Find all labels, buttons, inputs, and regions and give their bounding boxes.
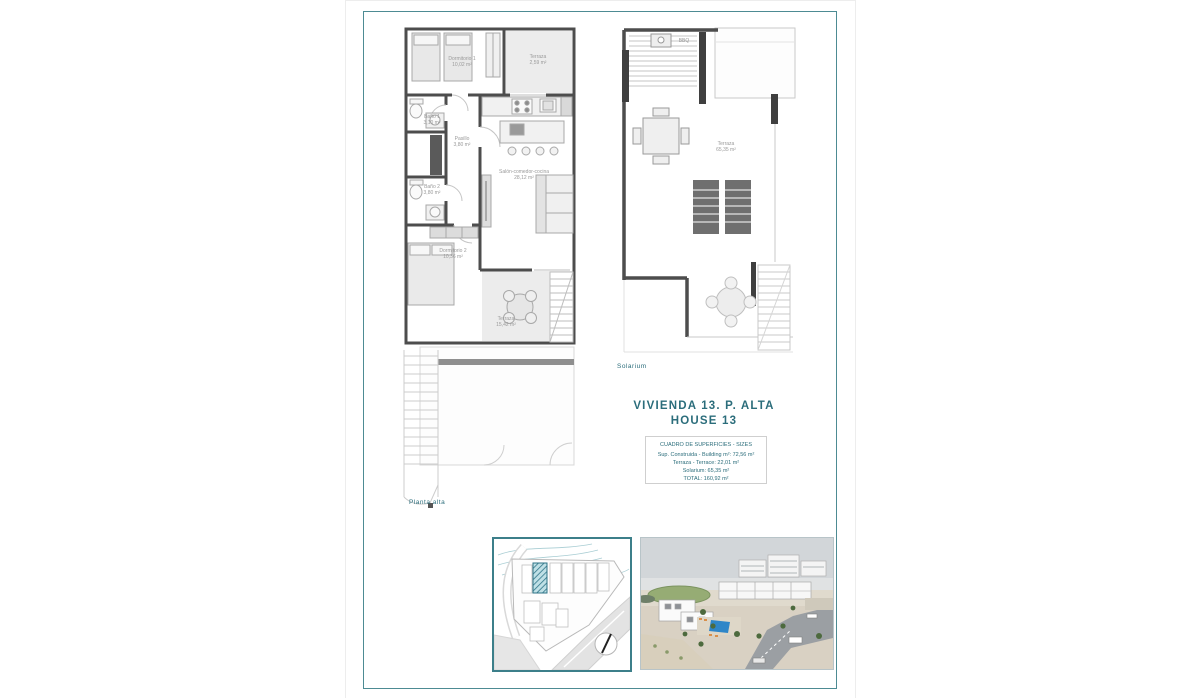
solarium-plan-drawing [615,22,805,377]
room-label-dormitorio2: Dormitorio 2 10,36 m² [439,249,466,260]
title-line2: HOUSE 13 [628,414,780,429]
outdoor-sink-icon [651,34,671,47]
north-marker [595,633,617,655]
aerial-render-drawing [641,538,833,669]
sofa-icon [536,175,573,233]
site-plan-image [492,537,632,672]
surface-row-solarium: Solarium: 65,35 m² [646,467,766,475]
caption-solarium: Solarium [617,363,647,370]
terraced-houses [719,582,811,599]
lower-patio-outline [420,347,574,465]
bbq-label: BBQ [679,39,690,45]
double-bed-icon [408,227,478,305]
room-label-bano2: Baño 2 3,80 m² [424,185,441,196]
tv-unit-icon [482,175,491,227]
kitchen-island [500,121,564,155]
room-label-salon: Salón-comedor-cocina 28,12 m² [499,170,549,181]
utility-shaft [430,135,442,175]
room-label-bano1: Baño 1 3,10 m² [424,115,441,126]
room-label-terraza-bottom: Terraza 15,42 m² [496,317,516,328]
title-block: VIVIENDA 13. P. ALTA HOUSE 13 [628,399,780,429]
roof-overhang [715,28,795,98]
room-label-pasillo: Pasillo 3,80 m² [454,137,471,148]
outdoor-table-icon [633,108,689,164]
caption-planta-alta: Planta alta [409,499,445,506]
upper-floor-plan-drawing [400,25,580,510]
room-label-terraza-top: Terraza 2,59 m² [530,55,547,66]
highlighted-plot-house13 [533,563,547,593]
surface-table-header: CUADRO DE SUPERFICIES - SIZES [646,441,766,449]
title-line1: VIVIENDA 13. P. ALTA [628,399,780,414]
kitchen-counter [482,97,572,116]
room-label-solarium-terraza: Terraza 65,35 m² [716,142,736,153]
interior-stair [550,272,573,342]
wardrobe-icon [486,33,500,77]
surface-row-building: Sup. Construida - Building m²: 72,56 m² [646,451,766,459]
aerial-render-image [640,537,834,670]
surface-row-terrace: Terraza - Terrace: 22,01 m² [646,459,766,467]
upper-floor-plan: Dormitorio 1 10,02 m² Terraza 2,59 m² Ba… [400,25,580,510]
solarium-plan: Terraza 65,35 m² BBQ [615,22,805,377]
sun-lounger-icons [693,180,751,234]
plan-sheet: Dormitorio 1 10,02 m² Terraza 2,59 m² Ba… [0,0,1200,698]
surface-table: CUADRO DE SUPERFICIES - SIZES Sup. Const… [645,436,767,484]
room-label-dormitorio1: Dormitorio 1 10,02 m² [448,57,475,68]
site-plan-drawing [494,539,630,670]
solarium-stair [758,265,790,350]
round-table-icon [706,277,756,327]
surface-row-total: TOTAL: 160,92 m² [646,475,766,483]
